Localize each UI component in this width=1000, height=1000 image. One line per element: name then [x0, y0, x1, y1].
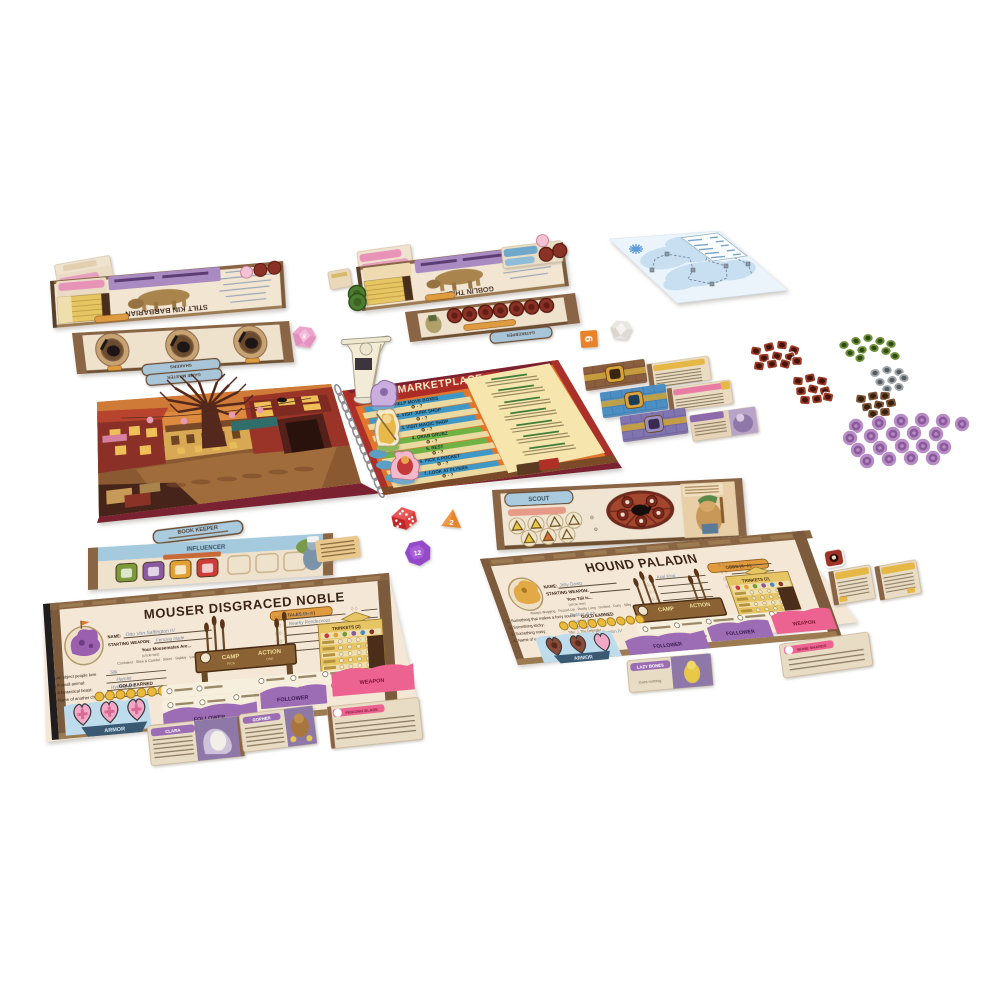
svg-text:♢♢: ♢♢ [719, 569, 729, 575]
svg-text:♢♢: ♢♢ [350, 606, 358, 612]
svg-text:PICK: PICK [227, 661, 236, 666]
svg-text:12: 12 [414, 550, 423, 558]
svg-text:ONE: ONE [266, 657, 274, 662]
svg-text:SCOUT: SCOUT [528, 496, 550, 503]
svg-text:♢♢: ♢♢ [717, 562, 727, 568]
svg-text:6: 6 [582, 336, 594, 343]
